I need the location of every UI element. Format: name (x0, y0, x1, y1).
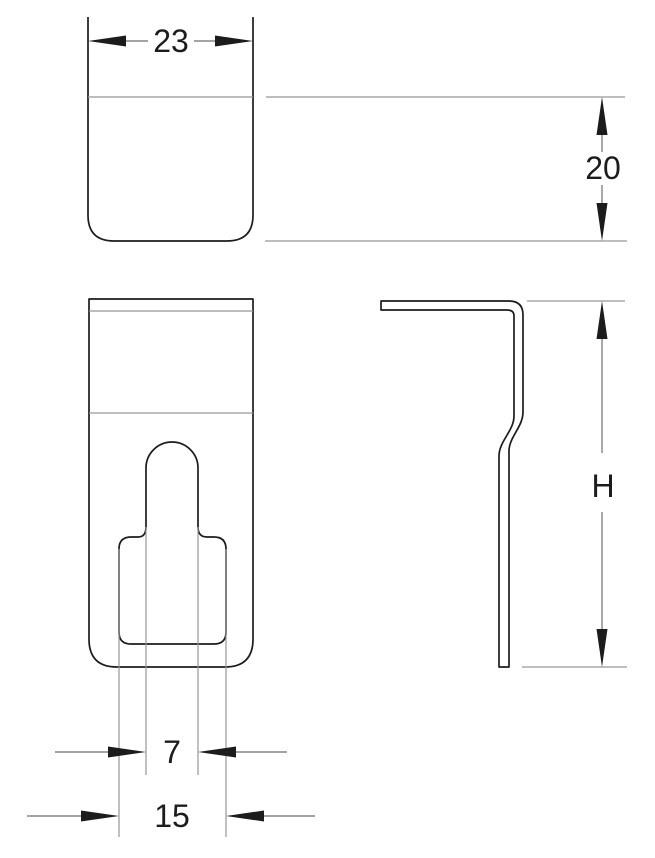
dim-23-arrow-right (215, 36, 253, 47)
dim-label-top-width: 23 (153, 23, 189, 59)
dim-label-top-depth: 20 (585, 150, 621, 186)
dim-label-overall-height: H (591, 468, 614, 504)
dim-20-arrow-up (597, 97, 608, 135)
dim-H-arrow-down (597, 629, 608, 667)
dimension-23: 23 (88, 23, 253, 59)
dim-15-arrow-left (81, 811, 119, 822)
dim-H-arrow-up (597, 301, 608, 339)
dimension-20: 20 (265, 97, 627, 241)
front-view-outline (89, 299, 253, 667)
side-view (381, 301, 523, 667)
dim-23-arrow-left (88, 36, 126, 47)
dim-7-arrow-right (198, 747, 236, 758)
dim-15-arrow-right (226, 811, 264, 822)
dim-label-slot-width: 7 (163, 734, 181, 770)
front-view-keyhole-slot (119, 442, 226, 644)
drawing-sheet: 23 20 (0, 0, 655, 858)
dimension-H: H (522, 301, 627, 667)
dim-7-arrow-left (108, 747, 146, 758)
dimension-7: 7 (55, 734, 287, 770)
dim-label-slot-opening: 15 (154, 798, 190, 834)
side-view-profile-outline (381, 301, 523, 667)
dim-20-arrow-down (597, 203, 608, 241)
technical-drawing-canvas: 23 20 (0, 0, 655, 858)
dimension-15: 15 (27, 798, 315, 834)
